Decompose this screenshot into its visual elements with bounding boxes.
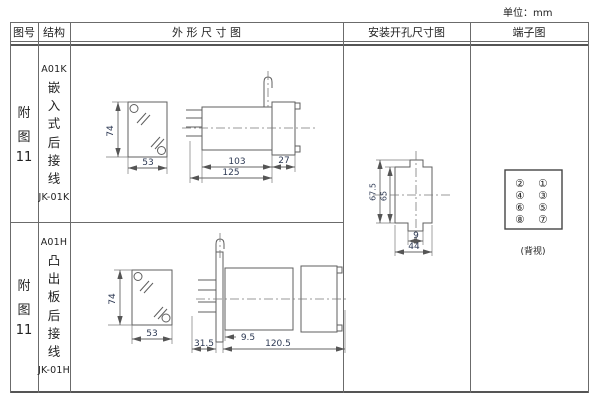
dim-rear-depth: 31.5	[194, 339, 214, 349]
terminal-8: ⑧	[515, 214, 524, 226]
rear-view-caption: (背视)	[520, 245, 545, 257]
dim-plate-offset: 9.5	[241, 333, 255, 343]
technical-drawings: 74 53 103 27 125	[0, 0, 600, 400]
terminal-5: ⑤	[538, 202, 547, 214]
row2-front-view: 74 53	[108, 270, 172, 344]
terminal-2: ②	[515, 178, 524, 190]
dim-outer-height: 67.5	[369, 183, 378, 201]
dim-front-width: 53	[146, 329, 157, 339]
terminal-4: ④	[515, 190, 524, 202]
dim-inner-height: 65	[380, 191, 389, 201]
row1-front-view: 74 53	[106, 102, 167, 174]
hatch-mark	[140, 281, 153, 293]
dim-total-depth: 120.5	[265, 339, 291, 349]
terminal-6: ⑥	[515, 202, 524, 214]
hatch-mark	[154, 307, 167, 319]
hatch-mark	[151, 137, 164, 149]
terminal-7: ⑦	[538, 214, 547, 226]
row2-side-view: 9.5 31.5 120.5	[192, 233, 348, 353]
terminal-3: ③	[538, 190, 547, 202]
dim-body-depth: 103	[228, 157, 245, 167]
dim-notch-width: 9	[413, 231, 419, 241]
dim-hole-width: 44	[408, 242, 420, 252]
hatch-mark	[137, 113, 150, 125]
terminal-1: ①	[538, 178, 547, 190]
dim-front-height: 74	[108, 293, 118, 305]
dim-flange-depth: 27	[278, 156, 289, 166]
install-hole-diagram: 67.5 65 9 44	[369, 151, 453, 256]
row1-side-view: 103 27 125	[182, 71, 315, 183]
dim-total-depth: 125	[222, 168, 239, 178]
dim-front-height: 74	[106, 125, 116, 137]
dim-front-width: 53	[142, 158, 153, 168]
terminal-diagram: ② ① ④ ③ ⑥ ⑤ ⑧ ⑦ (背视)	[505, 170, 562, 257]
